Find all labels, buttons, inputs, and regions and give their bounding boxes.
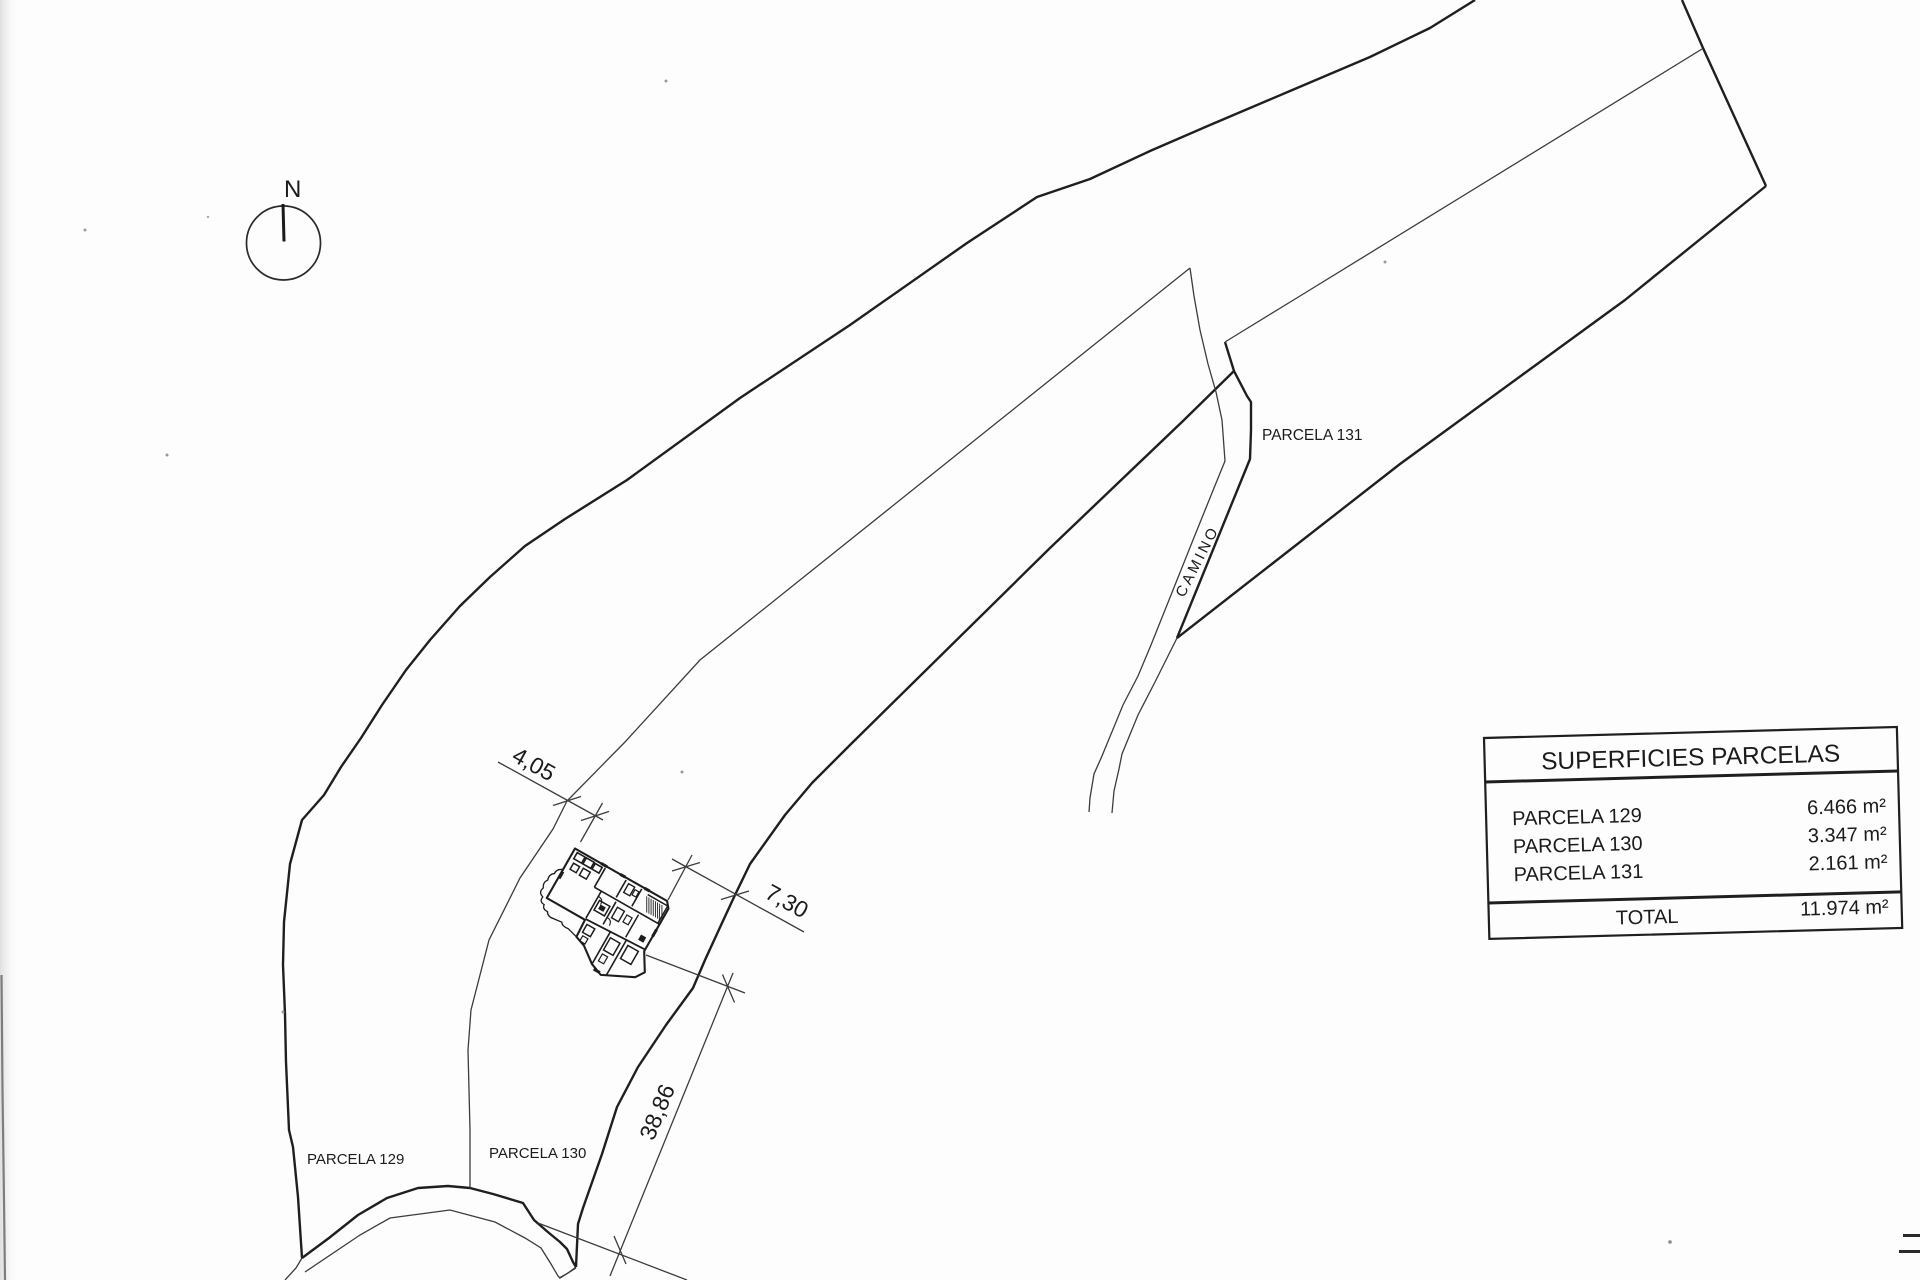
svg-text:11.974 m²: 11.974 m² [1800, 896, 1889, 920]
svg-text:TOTAL: TOTAL [1616, 906, 1679, 930]
svg-text:2.161 m²: 2.161 m² [1808, 851, 1888, 875]
svg-text:SUPERFICIES PARCELAS: SUPERFICIES PARCELAS [1541, 741, 1841, 776]
svg-text:3.347 m²: 3.347 m² [1808, 823, 1888, 847]
svg-text:PARCELA 129: PARCELA 129 [1512, 805, 1642, 830]
svg-text:4,05: 4,05 [508, 742, 560, 786]
svg-text:PARCELA 131: PARCELA 131 [1262, 427, 1363, 444]
svg-text:6.466 m²: 6.466 m² [1807, 795, 1887, 819]
svg-text:PARCELA 130: PARCELA 130 [489, 1145, 586, 1162]
svg-text:38,86: 38,86 [634, 1080, 680, 1143]
svg-text:N: N [284, 176, 301, 203]
svg-text:7,30: 7,30 [761, 879, 813, 923]
svg-text:PARCELA 129: PARCELA 129 [307, 1151, 404, 1168]
svg-text:PARCELA 130: PARCELA 130 [1513, 833, 1643, 858]
svg-text:PARCELA 131: PARCELA 131 [1513, 861, 1643, 886]
